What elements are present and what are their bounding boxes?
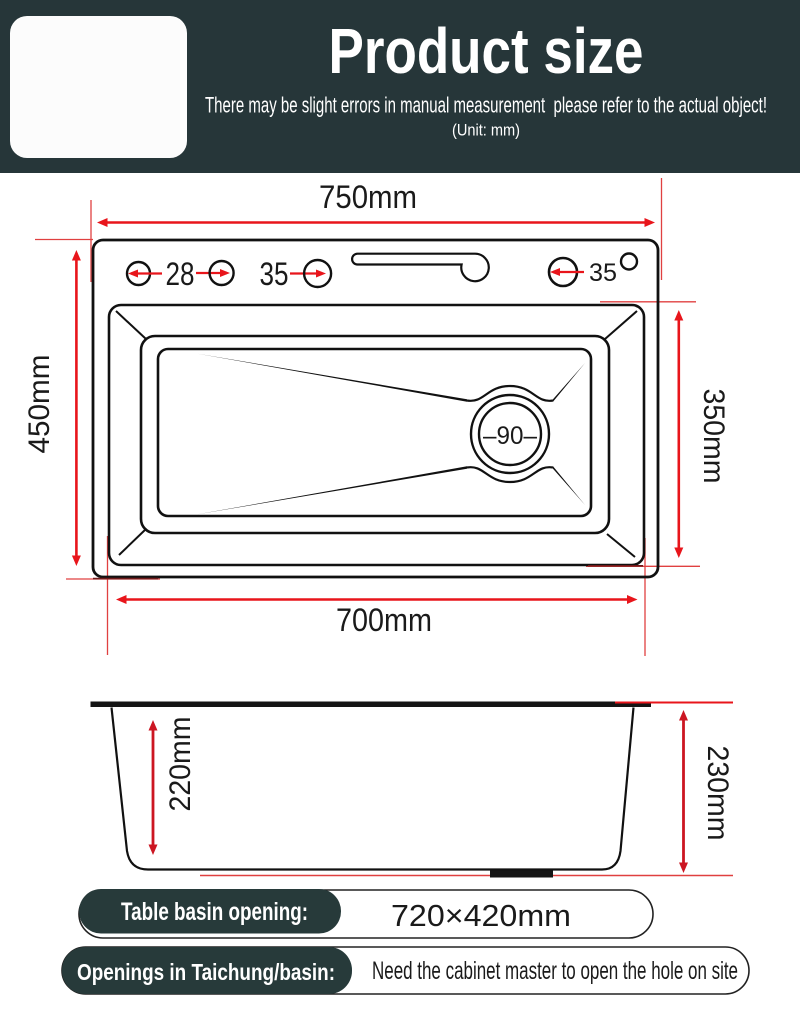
svg-text:(Unit: mm): (Unit: mm) — [452, 121, 520, 140]
svg-text:Need the cabinet master to ope: Need the cabinet master to open the hole… — [372, 957, 738, 985]
svg-text:720×420mm: 720×420mm — [391, 898, 571, 933]
svg-text:There may be slight errors in: There may be slight errors in manual mea… — [205, 93, 767, 118]
svg-text:Openings in Taichung/basin:: Openings in Taichung/basin: — [77, 959, 335, 985]
svg-text:28: 28 — [166, 256, 195, 292]
svg-text:Table basin opening:: Table basin opening: — [121, 898, 308, 926]
svg-text:350mm: 350mm — [697, 389, 730, 484]
svg-text:450mm: 450mm — [23, 355, 56, 454]
svg-text:700mm: 700mm — [336, 602, 432, 638]
svg-text:35: 35 — [260, 256, 289, 292]
svg-text:750mm: 750mm — [319, 179, 417, 215]
svg-text:35: 35 — [589, 259, 617, 287]
svg-text:220mm: 220mm — [164, 717, 197, 812]
svg-text:–90–: –90– — [483, 422, 537, 450]
svg-text:230mm: 230mm — [701, 746, 734, 841]
svg-text:Product size: Product size — [329, 15, 644, 87]
